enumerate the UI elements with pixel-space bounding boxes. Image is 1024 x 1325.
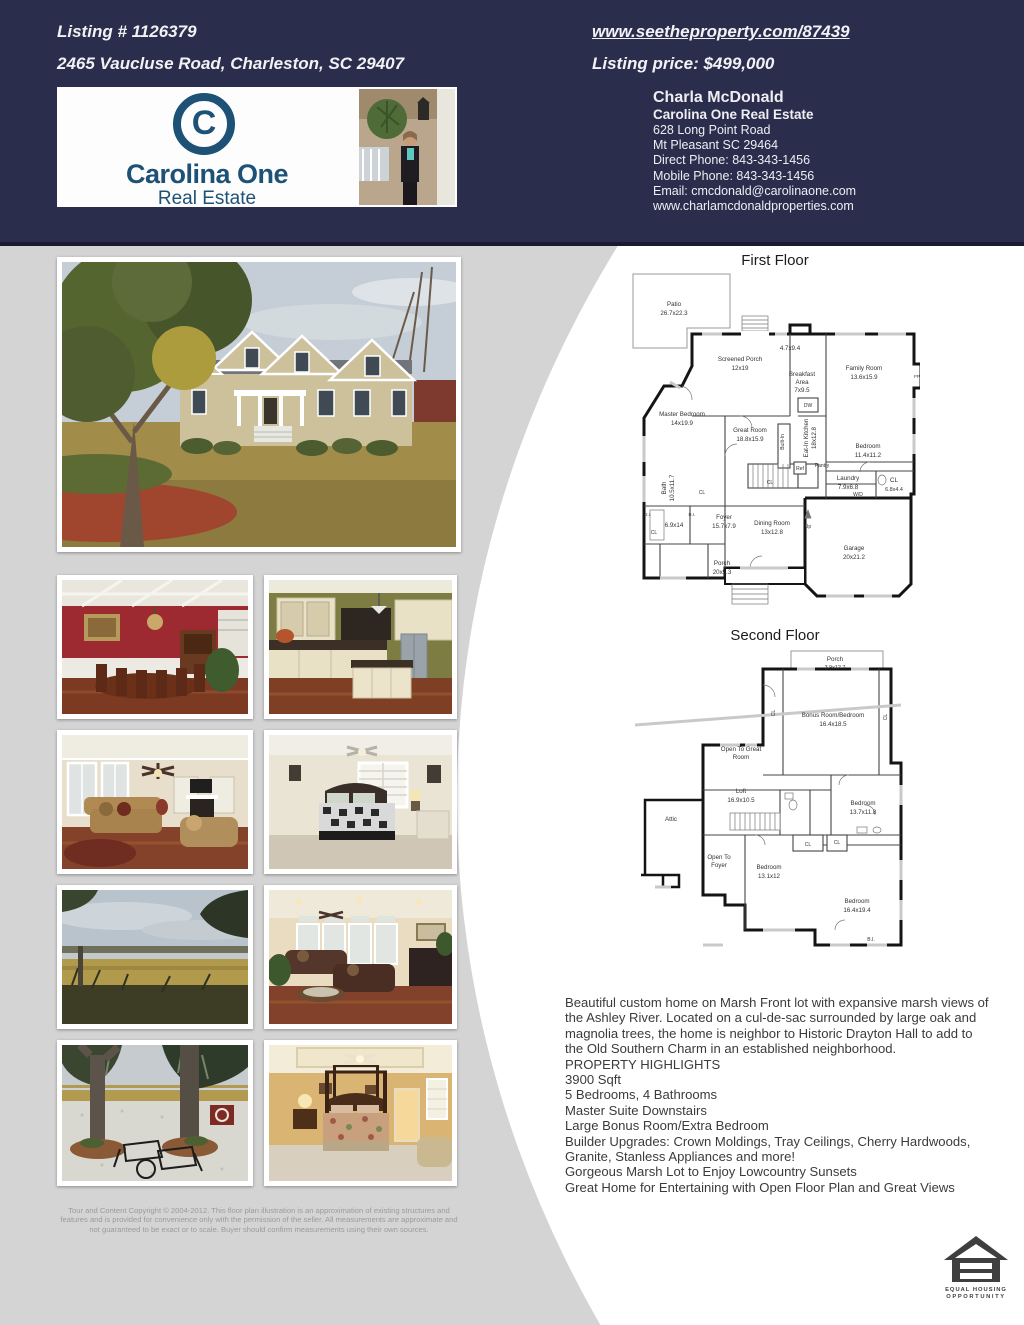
description-paragraph: Beautiful custom home on Marsh Front lot… [565,995,989,1057]
agent-address2: Mt Pleasant SC 29464 [653,138,856,153]
agent-website-link[interactable]: www.charlamcdonaldproperties.com [653,199,856,214]
agent-email[interactable]: Email: cmcdonald@carolinaone.com [653,184,856,199]
room-dim: 4.7x9.4 [780,345,801,352]
room-label: Garage [844,545,865,552]
room-label: Porch [714,560,731,567]
room-dim: 13.7x11.8 [850,809,877,816]
room-label: Attic [665,816,677,823]
room-label: Built-In [780,434,786,450]
highlight-beds-baths: 5 Bedrooms, 4 Bathrooms [565,1087,989,1102]
room-label: B.I. [645,512,652,517]
room-label: Up [805,524,812,530]
photo-living-room [57,730,253,874]
room-label: Open To Great [721,746,762,753]
agent-contact-block: Charla McDonald Carolina One Real Estate… [653,88,856,214]
content-area: First Floor [0,246,1024,1325]
eho-text-line2: OPPORTUNITY [946,1294,1005,1300]
room-dim: 14x19.9 [671,420,694,427]
highlight-entertaining: Great Home for Entertaining with Open Fl… [565,1180,989,1195]
listing-number: Listing # 1126379 [57,22,197,42]
header-band: Listing # 1126379 2465 Vaucluse Road, Ch… [0,0,1024,246]
room-dim: 10.5x11.7 [669,474,676,501]
photo-master-bedroom [264,1040,457,1186]
room-dim: 16.9x10.5 [727,797,755,804]
room-label: Bedroom [756,864,781,871]
property-address: 2465 Vaucluse Road, Charleston, SC 29407 [57,54,404,74]
agent-photo [359,89,455,205]
room-label: Pantry [815,463,830,469]
property-tour-link[interactable]: www.seetheproperty.com/87439 [592,22,850,42]
room-label: Family Room [846,365,882,372]
room-label: W/D [853,492,863,498]
room-dim: 20x5.3 [713,569,732,576]
room-dim: 3.9x12.7 [825,665,846,671]
flyer-page: Listing # 1126379 2465 Vaucluse Road, Ch… [0,0,1024,1325]
room-label: Ref [796,466,804,472]
room-label: Area [795,379,809,386]
room-label: CL [767,480,774,486]
room-label: CL [699,490,706,496]
room-dim: 6.9x14 [665,522,684,529]
room-label: Bedroom [855,443,880,450]
room-dim: 15.7x7.9 [712,523,736,530]
room-dim: 18.8x15.9 [736,436,764,443]
room-label: Dining Room [754,520,790,527]
carolina-one-logo-icon: C [173,93,235,155]
property-description: Beautiful custom home on Marsh Front lot… [565,995,989,1195]
photo-sunroom [264,885,457,1029]
room-label: CL [883,714,889,721]
room-dim: 26.7x22.3 [660,310,688,317]
room-dim: 11.4x11.2 [855,452,882,459]
photo-bedroom-guest [264,730,457,874]
highlight-sqft: 3900 Sqft [565,1072,989,1087]
room-label: Loft [736,788,747,795]
highlight-upgrades: Builder Upgrades: Crown Moldings, Tray C… [565,1134,989,1165]
room-label: Bath [661,481,668,494]
room-dim: 18x12.8 [811,426,818,449]
highlights-title: PROPERTY HIGHLIGHTS [565,1057,989,1072]
room-dim: 16.4x19.4 [843,907,871,914]
room-label: CL [890,477,898,484]
room-dim: 6.8x4.4 [885,487,903,493]
agent-mobile-phone: Mobile Phone: 843-343-1456 [653,169,856,184]
photo-house-exterior [57,257,461,552]
brokerage-subtitle: Real Estate [57,188,357,210]
room-label: DW [804,403,813,409]
room-label: Room [733,754,750,761]
second-floor-plan: Porch 3.9x12.7 CL Bonus Room/Bedroom 16.… [635,645,915,985]
copyright-disclaimer: Tour and Content Copyright © 2004-2012. … [57,1206,461,1234]
brokerage-logo-box: C Carolina One Real Estate [57,87,457,207]
second-floor-title: Second Floor [635,627,915,644]
agent-direct-phone: Direct Phone: 843-343-1456 [653,153,856,168]
equal-housing-opportunity-logo: EQUAL HOUSING OPPORTUNITY [940,1234,1012,1305]
brokerage-name: Carolina One [57,159,357,190]
room-label: Porch [827,656,844,663]
room-dim: 12x19 [732,365,749,372]
room-label: Foyer [716,514,732,521]
room-label: Bedroom [844,898,869,905]
first-floor-plan: Patio 26.7x22.3 Screened Porch 12x19 4.7… [630,266,920,616]
photo-dining-room [57,575,253,719]
agent-company: Carolina One Real Estate [653,107,856,123]
highlight-marsh-lot: Gorgeous Marsh Lot to Enjoy Lowcountry S… [565,1164,989,1179]
room-label: Patio [667,301,682,308]
room-dim: 16.4x18.5 [819,721,847,728]
listing-price: Listing price: $499,000 [592,54,774,74]
room-label: B.I. [689,512,696,517]
room-dim: 20x21.2 [843,554,866,561]
room-label: CL [805,842,812,848]
room-label: Foyer [711,862,727,869]
room-dim: 13.1x12 [758,873,781,880]
room-label: CL [651,530,658,536]
highlight-master: Master Suite Downstairs [565,1103,989,1118]
room-label: Great Room [733,427,767,434]
room-label: Bedroom [850,800,875,807]
room-label: CL [771,710,777,717]
agent-name: Charla McDonald [653,88,856,107]
highlight-bonus: Large Bonus Room/Extra Bedroom [565,1118,989,1133]
room-label: Bonus Room/Bedroom [802,712,865,719]
room-dim: 13x12.8 [761,529,784,536]
room-dim: 13.6x15.9 [850,374,878,381]
room-label: Breakfast [789,371,815,378]
room-label: Master Bedroom [659,411,705,418]
room-label: Screened Porch [718,356,763,363]
room-label: Open To [707,854,731,861]
room-dim: 7x9.5 [794,387,810,394]
room-label: B.I. [867,937,875,943]
room-dim: 7.9x6.8 [838,484,859,491]
eho-house-icon [944,1236,1008,1260]
room-label: Laundry [837,475,860,482]
room-label: CL [834,840,841,846]
eho-text-line1: EQUAL HOUSING [945,1287,1007,1293]
room-label: FP [914,374,920,379]
photo-marsh-view [57,885,253,1029]
agent-address1: 628 Long Point Road [653,123,856,138]
photo-kitchen [264,575,457,719]
photo-patio-marsh [57,1040,253,1186]
room-label: Eat-In Kitchen [803,418,810,457]
